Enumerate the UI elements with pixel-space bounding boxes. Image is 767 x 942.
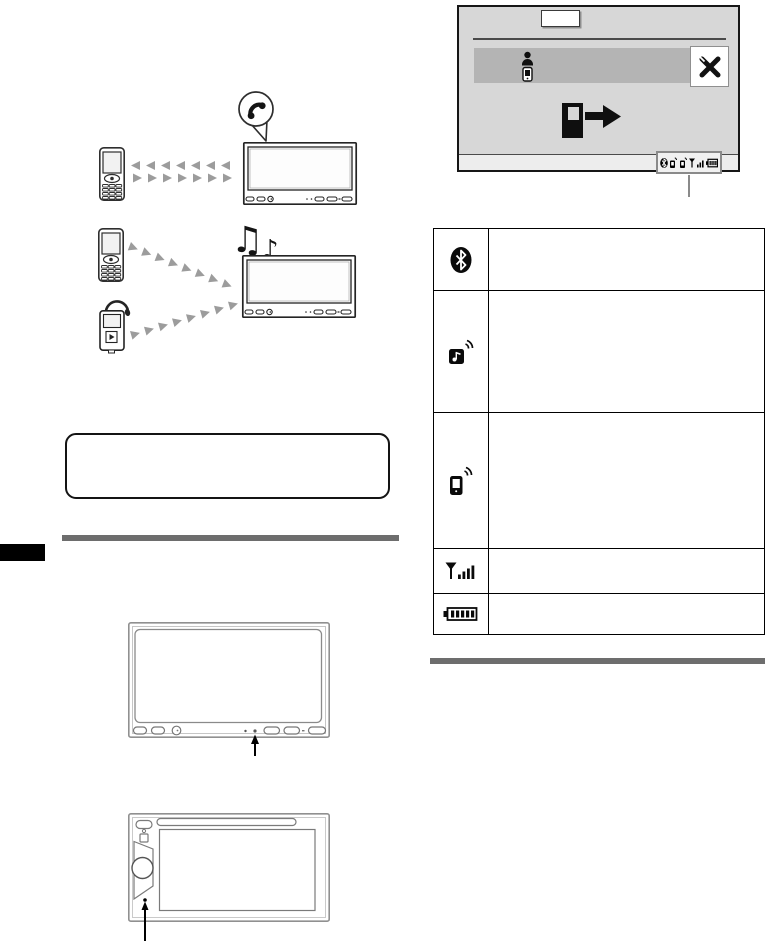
handsfree-phone-icon bbox=[448, 466, 475, 496]
mobile-phone-illustration bbox=[99, 229, 123, 281]
person-icon bbox=[522, 52, 533, 66]
display-mockup bbox=[457, 5, 740, 172]
table-cell-description bbox=[489, 229, 765, 291]
section-rule bbox=[62, 535, 399, 541]
status-callout-line bbox=[688, 175, 690, 197]
signal-arrows-left bbox=[131, 161, 230, 170]
page-tab-marker bbox=[0, 544, 45, 561]
device-list-row bbox=[474, 48, 690, 83]
av-receiver-illustration bbox=[243, 256, 355, 317]
table-row bbox=[434, 594, 765, 635]
audio-streaming-icon bbox=[448, 339, 475, 365]
battery-level-icon bbox=[443, 606, 479, 622]
screen-divider bbox=[473, 38, 726, 40]
cellphone-icon bbox=[523, 68, 532, 82]
status-icon-table bbox=[433, 228, 765, 635]
status-icon-cluster bbox=[656, 151, 722, 174]
settings-button bbox=[690, 46, 729, 87]
speech-bubble bbox=[239, 92, 273, 141]
bluetooth-icon bbox=[660, 158, 668, 168]
portable-player-illustration bbox=[100, 301, 131, 353]
diagram-handsfree-calling bbox=[100, 92, 356, 204]
manual-page: ♫ ♪ bbox=[0, 0, 767, 942]
table-cell-description bbox=[489, 291, 765, 413]
signal-arrows-up-right bbox=[130, 299, 239, 340]
diagram-audio-streaming: ♫ ♪ bbox=[99, 220, 355, 353]
phone-connect-arrow-icon bbox=[562, 103, 624, 143]
table-row bbox=[434, 229, 765, 291]
mobile-phone-illustration bbox=[100, 148, 124, 200]
table-row bbox=[434, 413, 765, 549]
signal-arrows-down-right bbox=[128, 242, 233, 291]
receiver-front-panel-1 bbox=[129, 623, 329, 756]
section-rule bbox=[430, 658, 765, 664]
signal-strength-icon bbox=[689, 158, 704, 167]
handsfree-phone-icon bbox=[680, 157, 687, 167]
source-button bbox=[541, 10, 580, 27]
settings-icon bbox=[697, 54, 723, 80]
signal-arrows-right bbox=[133, 174, 232, 183]
table-row bbox=[434, 291, 765, 413]
table-cell-description bbox=[489, 413, 765, 549]
battery-icon bbox=[706, 159, 718, 167]
note-box bbox=[65, 433, 390, 499]
table-cell-description bbox=[489, 549, 765, 594]
table-row bbox=[434, 549, 765, 594]
bluetooth-icon bbox=[449, 246, 473, 274]
audio-streaming-icon bbox=[670, 157, 677, 167]
music-notes-icon: ♫ bbox=[231, 220, 263, 261]
av-receiver-illustration bbox=[244, 143, 356, 204]
signal-strength-icon bbox=[445, 561, 477, 581]
table-cell-description bbox=[489, 594, 765, 635]
receiver-front-panel-2 bbox=[129, 814, 329, 941]
